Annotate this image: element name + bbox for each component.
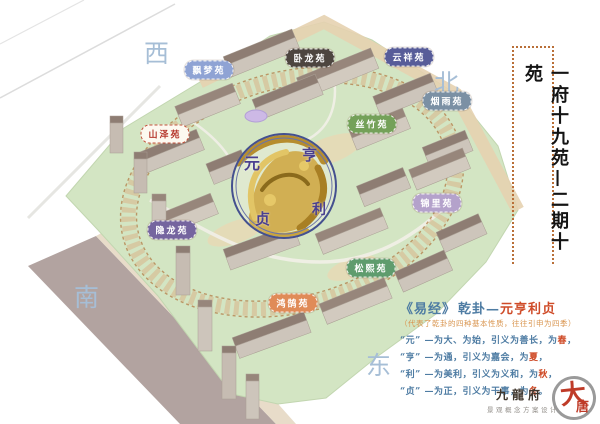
tower-block xyxy=(110,116,123,153)
circle-char-zhen: 贞 xyxy=(255,208,270,229)
line-text: “亨” —为通，引义为嘉会，为 xyxy=(400,353,529,363)
line-punct: ， xyxy=(567,336,577,346)
garden-label-piaomeng: 飘梦苑 xyxy=(184,61,233,80)
tower-block xyxy=(222,346,236,399)
line-text: “元” —为大、为始，引义为善长，为 xyxy=(400,336,558,346)
tower-block xyxy=(246,374,259,419)
season-char: 春 xyxy=(558,336,568,346)
side-title: 一府十九苑—二期十苑 xyxy=(519,64,571,264)
tower-block xyxy=(176,246,190,295)
line-punct: ， xyxy=(539,353,549,363)
garden-label-yanyu: 烟雨苑 xyxy=(422,92,471,111)
pool xyxy=(245,110,267,122)
line-punct: ， xyxy=(548,370,558,380)
garden-label-yinlong: 隐龙苑 xyxy=(147,221,196,240)
yijing-book: 《易经》 xyxy=(400,302,456,317)
circle-char-li: 利 xyxy=(312,199,326,219)
season-char: 秋 xyxy=(539,370,549,380)
circle-char-heng: 亨 xyxy=(302,144,317,165)
project-name: 九龍府 xyxy=(496,386,544,403)
compass-east: 东 xyxy=(366,346,391,382)
garden-label-jinli: 锦里苑 xyxy=(412,194,461,213)
masterplan-poster: 西 北 南 东 飘梦苑 卧龙苑 云祥苑 烟雨苑 丝竹苑 山泽苑 锦里苑 隐龙苑 … xyxy=(0,0,600,424)
garden-label-yunxiang: 云祥苑 xyxy=(384,48,433,67)
circle-char-yuan: 元 xyxy=(244,150,260,174)
garden-label-sizhu: 丝竹苑 xyxy=(347,115,396,134)
yijing-line-yuan: “元” —为大、为始，引义为善长，为春， xyxy=(400,333,598,346)
tower-block xyxy=(134,152,147,193)
yijing-gua: 乾卦— xyxy=(458,302,500,317)
yijing-note: （代表了乾卦的四种基本性质，往往引申为四季） xyxy=(400,318,598,329)
compass-west: 西 xyxy=(144,34,169,70)
garden-label-honghu: 鸿鹄苑 xyxy=(268,294,317,313)
seal-char-tang: 唐 xyxy=(576,396,589,415)
garden-label-shanze: 山泽苑 xyxy=(140,125,189,144)
yijing-title: 《易经》乾卦—元亨利贞 xyxy=(400,298,598,317)
garden-label-wolong: 卧龙苑 xyxy=(285,49,334,68)
project-subtitle: 景观概念方案设计 xyxy=(487,404,559,414)
season-char: 夏 xyxy=(529,353,539,363)
line-text: “利” —为美利，引义为义和，为 xyxy=(400,370,539,380)
garden-label-songxi: 松熙苑 xyxy=(346,259,395,278)
yijing-line-heng: “亨” —为通，引义为嘉会，为夏， xyxy=(400,350,598,363)
yijing-four-virtues: 元亨利贞 xyxy=(500,302,556,317)
compass-south: 南 xyxy=(74,278,99,314)
tower-block xyxy=(198,300,212,351)
